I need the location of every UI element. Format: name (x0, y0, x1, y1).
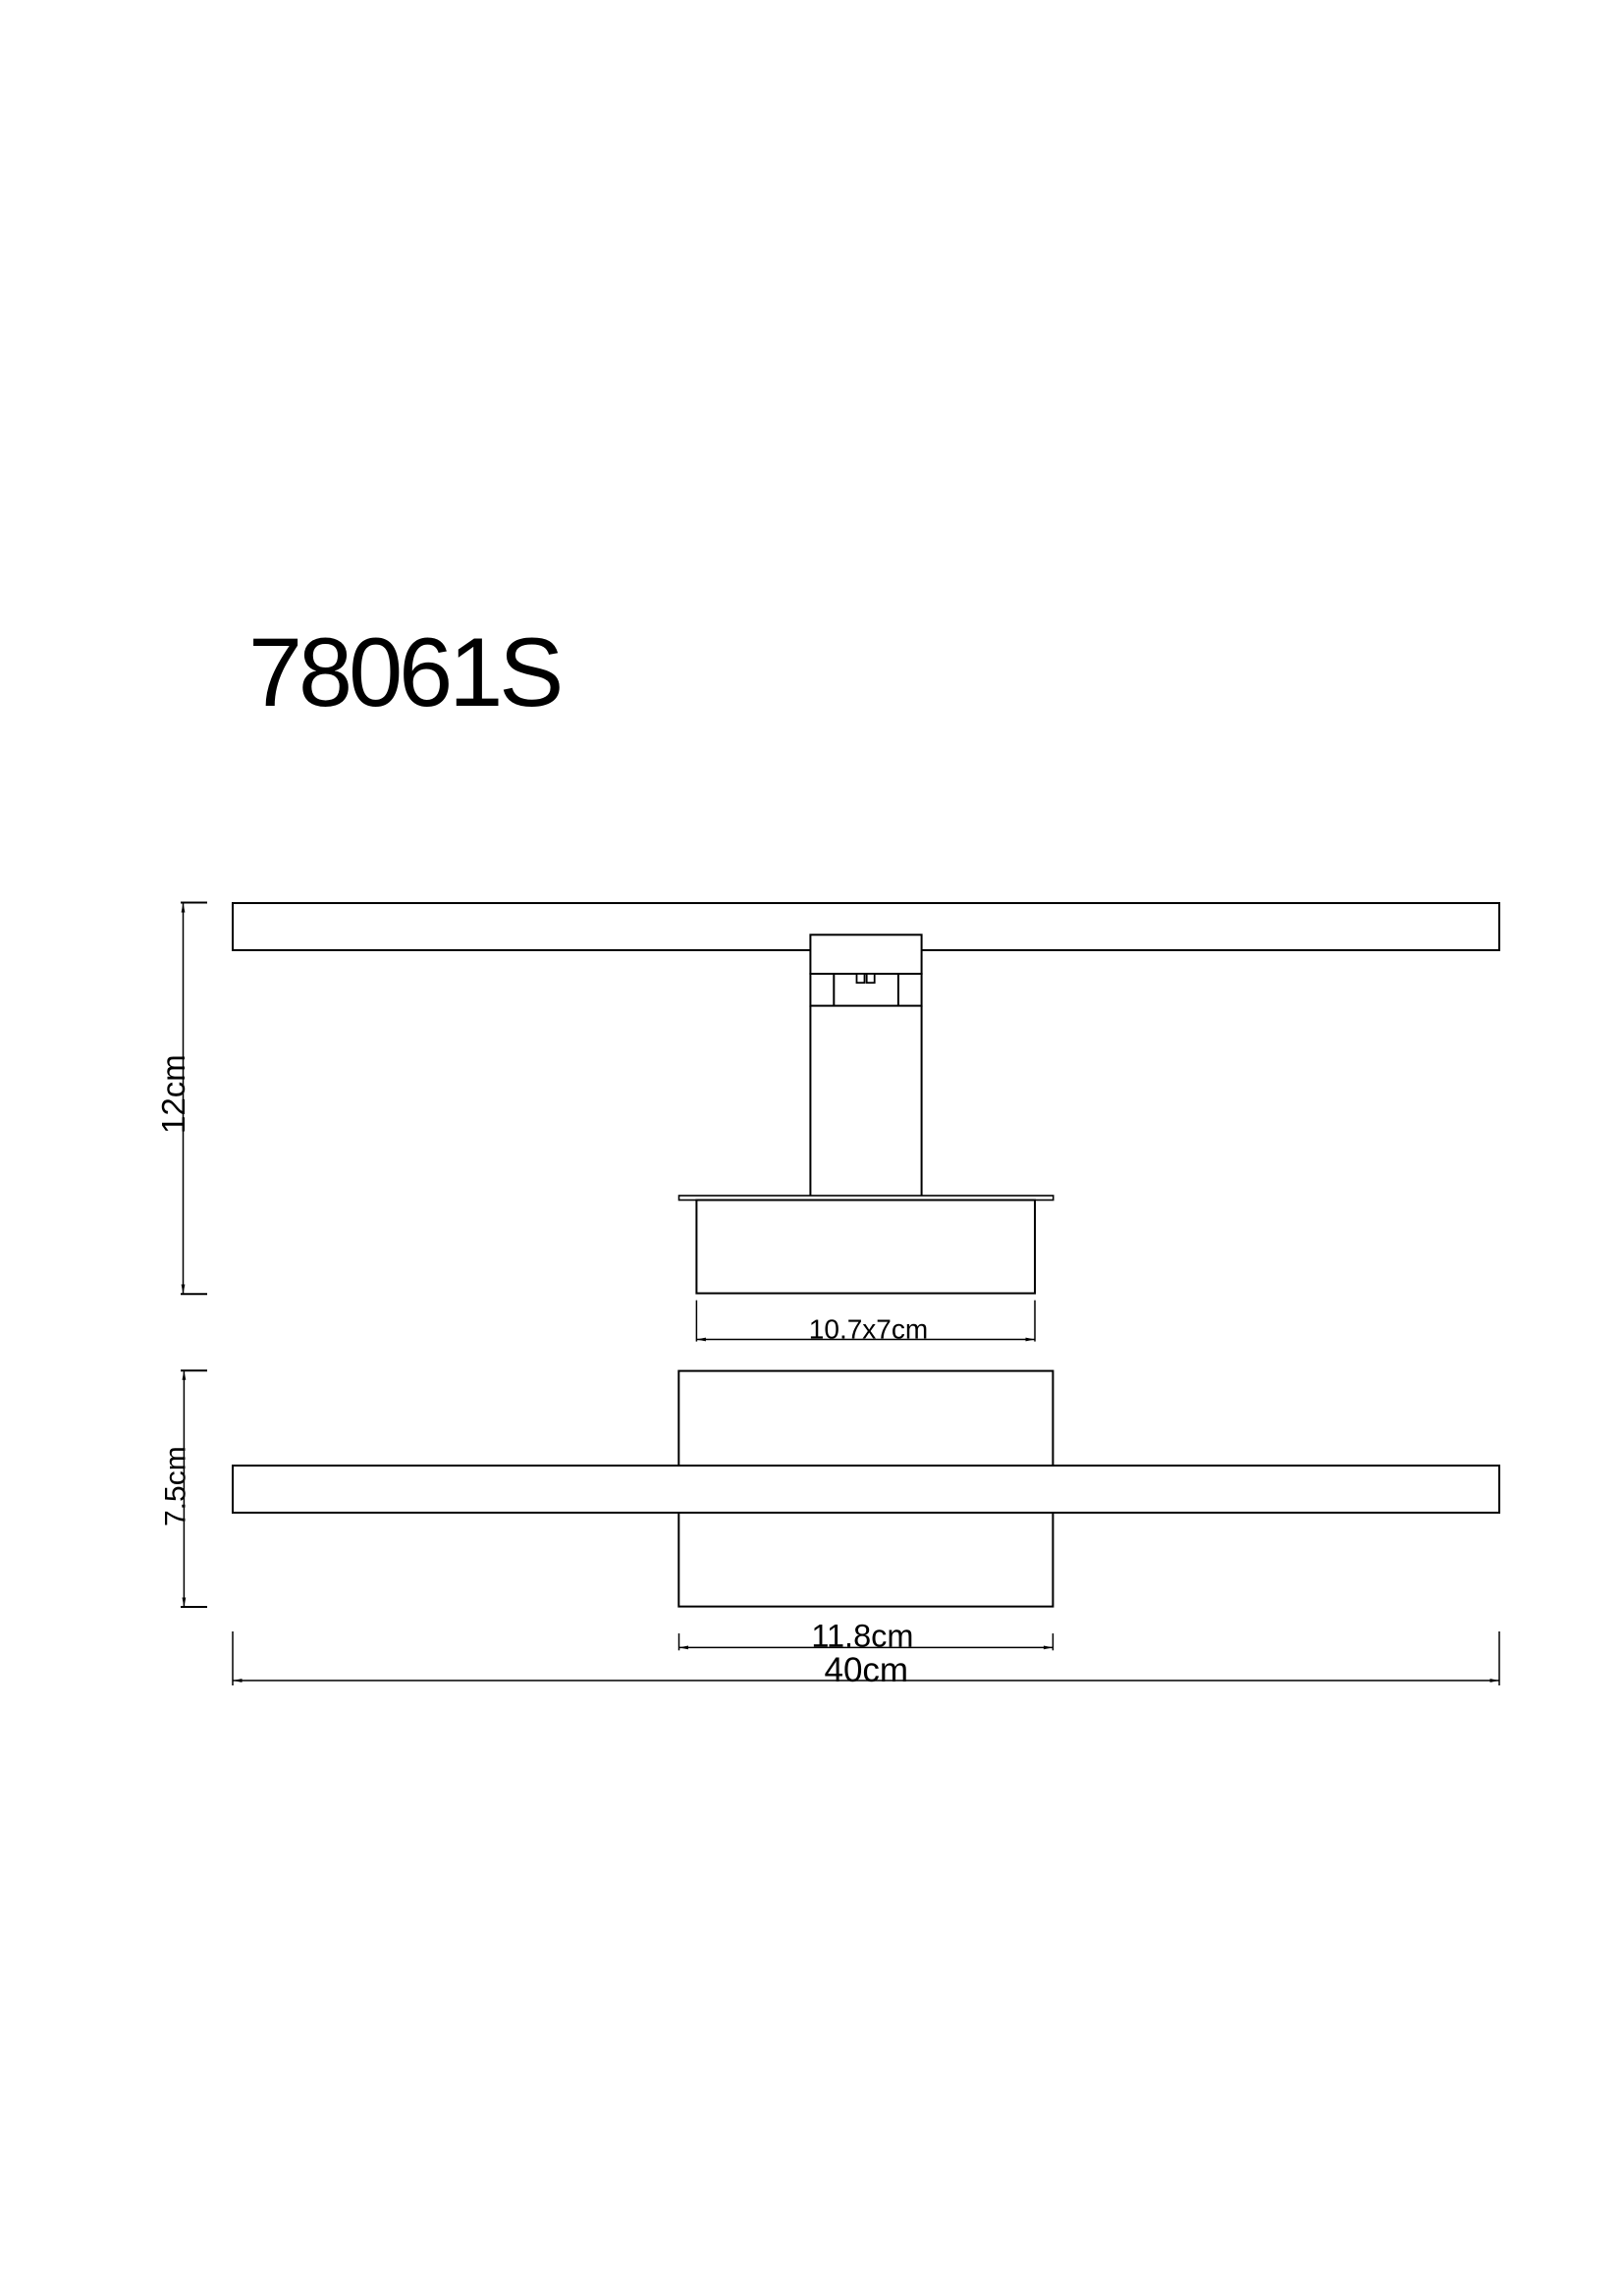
svg-text:10.7x7cm: 10.7x7cm (809, 1314, 928, 1345)
svg-text:40cm: 40cm (825, 1651, 909, 1689)
svg-text:7.5cm: 7.5cm (160, 1446, 192, 1526)
svg-text:12cm: 12cm (155, 1054, 191, 1134)
svg-text:78061S: 78061S (248, 617, 560, 726)
svg-text:11.8cm: 11.8cm (811, 1619, 913, 1654)
